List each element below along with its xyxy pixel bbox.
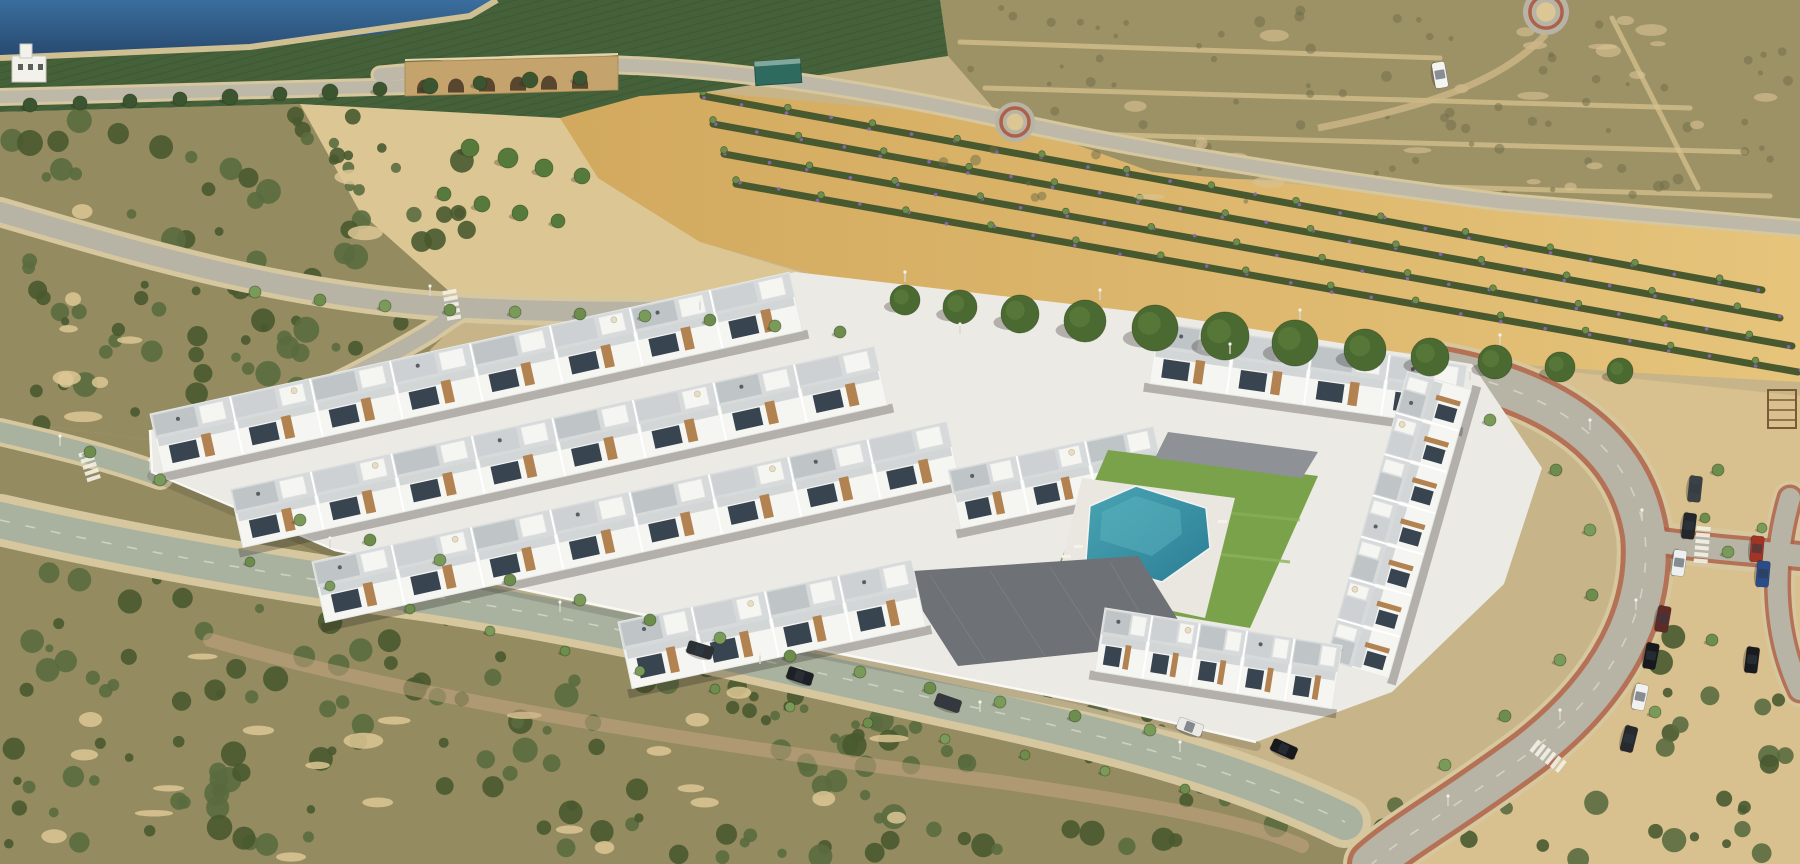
bush: [537, 820, 552, 835]
scrub-blotch: [1113, 34, 1118, 39]
scrub-blotch: [1469, 141, 1475, 147]
bush: [108, 123, 129, 144]
street-tree: [784, 650, 796, 662]
street-tree: [405, 604, 415, 614]
flower-dot: [1406, 277, 1410, 281]
window-glass: [1316, 381, 1345, 403]
flower-dot: [934, 193, 938, 197]
bush: [149, 135, 173, 159]
bush: [1584, 791, 1608, 815]
street-tree: [379, 300, 391, 312]
sand-patch: [92, 377, 108, 388]
young-tree: [1490, 285, 1497, 292]
young-tree: [1716, 275, 1723, 282]
bush: [194, 364, 213, 383]
young-tree: [1377, 213, 1384, 220]
bush: [61, 317, 69, 325]
bush: [1754, 698, 1771, 715]
scrub-blotch: [1595, 20, 1603, 28]
bush: [134, 291, 148, 305]
flower-dot: [1275, 254, 1279, 258]
stair-penthouse: [736, 595, 762, 620]
street-tree: [574, 594, 586, 606]
bush: [319, 700, 336, 717]
scrub-blotch: [1759, 145, 1765, 151]
tree: [437, 187, 451, 201]
flower-dot: [1549, 251, 1553, 255]
aerial-scene: Aerial 3D render of a new white Mediterr…: [0, 0, 1800, 864]
flower-dot: [1664, 323, 1668, 327]
flower-dot: [1103, 221, 1107, 225]
flower-dot: [1338, 211, 1342, 215]
bush: [42, 172, 52, 182]
street-tree: [1722, 546, 1734, 558]
scrub-blotch: [1218, 31, 1225, 38]
bush: [991, 844, 1002, 855]
scrub-blotch: [1096, 55, 1104, 63]
young-tree: [1293, 197, 1300, 204]
young-tree: [1734, 303, 1741, 310]
bush: [221, 741, 246, 766]
flower-dot: [1086, 165, 1090, 169]
stair-penthouse: [1130, 615, 1147, 636]
bush: [330, 148, 346, 164]
car-glass: [1645, 650, 1657, 661]
window-glass: [1238, 370, 1267, 392]
bush: [144, 825, 155, 836]
dirt-patch: [1564, 182, 1576, 190]
bush: [173, 736, 185, 748]
bush: [909, 720, 922, 733]
stair-penthouse: [1127, 431, 1151, 453]
scrub-blotch: [1766, 155, 1773, 162]
young-tree: [733, 177, 740, 184]
scrub-blotch: [998, 5, 1004, 11]
street-tree: [1144, 724, 1156, 736]
flower-dot: [740, 103, 744, 107]
street-tree: [635, 666, 645, 676]
flower-dot: [1504, 245, 1508, 249]
bush: [118, 589, 142, 613]
bush: [740, 837, 750, 847]
scrub-blotch: [1448, 36, 1453, 41]
young-tree: [1038, 151, 1045, 158]
orchard-tree: [573, 71, 587, 85]
bush: [830, 733, 839, 742]
flower-dot: [1628, 339, 1632, 343]
young-tree: [954, 135, 961, 142]
street-tree: [245, 557, 255, 567]
dirt-patch: [1650, 41, 1666, 46]
bush: [590, 820, 613, 843]
bush: [22, 253, 37, 268]
young-tree: [795, 132, 802, 139]
car-glass: [1752, 544, 1763, 554]
bush: [336, 695, 350, 709]
flower-dot: [1705, 327, 1709, 331]
young-tree: [1233, 239, 1240, 246]
bush: [130, 407, 140, 417]
pine-crown: [1482, 350, 1499, 367]
scrub-blotch: [1606, 128, 1611, 133]
car-glass: [1684, 520, 1695, 530]
sun-lounger: [1218, 520, 1227, 523]
bush: [72, 304, 87, 319]
flower-dot: [1467, 236, 1471, 240]
scrub-blotch: [1050, 107, 1059, 116]
scrub-blotch: [1095, 26, 1100, 31]
bush: [1738, 801, 1751, 814]
pine-crown: [1549, 357, 1564, 372]
bush: [378, 629, 401, 652]
sand-patch: [135, 810, 173, 817]
young-tree: [1242, 267, 1249, 274]
bush: [1152, 828, 1175, 851]
bush: [874, 813, 885, 824]
flower-dot: [1118, 252, 1122, 256]
bush: [204, 679, 225, 700]
bush: [865, 843, 885, 863]
dirt-patch: [1527, 179, 1541, 184]
scrub-blotch: [1233, 99, 1239, 105]
bush: [503, 766, 518, 781]
sand-patch: [686, 713, 709, 726]
street-tree: [1757, 523, 1767, 533]
street-tree: [1180, 784, 1190, 794]
street-tree: [1706, 634, 1718, 646]
young-tree: [1051, 179, 1058, 186]
bush: [669, 845, 688, 864]
bush: [588, 739, 605, 756]
flower-dot: [1289, 281, 1293, 285]
scrub-blotch: [1740, 147, 1749, 156]
bush: [377, 143, 387, 153]
sand-patch: [362, 797, 393, 807]
bush: [1648, 824, 1663, 839]
sun-lounger: [1074, 545, 1083, 548]
young-tree: [1547, 244, 1554, 251]
bush: [172, 692, 191, 711]
sand-patch: [869, 735, 908, 743]
bush: [39, 562, 60, 583]
bush: [716, 824, 737, 845]
street-tree: [639, 310, 651, 322]
street-tree: [769, 320, 781, 332]
young-tree: [1123, 166, 1130, 173]
orchard-tree: [273, 87, 287, 101]
bush: [343, 151, 353, 161]
scrub-blotch: [1446, 120, 1457, 131]
bush: [17, 130, 43, 156]
bush: [411, 231, 432, 252]
bush: [23, 781, 36, 794]
young-tree: [1307, 225, 1314, 232]
bush: [384, 656, 398, 670]
bush: [121, 649, 137, 665]
sand-patch: [153, 785, 184, 791]
scrub-blotch: [1760, 52, 1766, 58]
young-tree: [1575, 300, 1582, 307]
sand-patch: [79, 712, 102, 727]
scrub-blotch: [1294, 11, 1304, 21]
flower-dot: [755, 130, 759, 134]
scrub-blotch: [1426, 33, 1433, 40]
pine-crown: [1207, 319, 1231, 343]
flower-dot: [829, 115, 833, 119]
sand-patch: [812, 791, 835, 806]
bush: [349, 638, 372, 661]
scrub-blotch: [1741, 119, 1748, 126]
stair-penthouse: [809, 580, 835, 605]
roof-terrace: [1151, 618, 1179, 643]
bush: [89, 775, 100, 786]
bush: [860, 790, 870, 800]
scrub-blotch: [1494, 103, 1502, 111]
bush: [50, 158, 73, 181]
street-tree: [994, 696, 1006, 708]
sand-patch: [64, 411, 102, 422]
street-tree: [249, 286, 261, 298]
dirt-patch: [1754, 93, 1777, 102]
orchard-tree: [373, 82, 387, 96]
sand-patch: [305, 762, 330, 769]
sand-patch: [726, 687, 751, 699]
young-tree: [1462, 228, 1469, 235]
flower-dot: [1009, 175, 1013, 179]
bush: [770, 711, 780, 721]
bush: [761, 715, 771, 725]
dirt-patch: [1588, 44, 1617, 50]
utility-shed: [754, 58, 802, 85]
flower-dot: [1787, 345, 1791, 349]
stair-penthouse: [1177, 623, 1194, 644]
young-tree: [1478, 256, 1485, 263]
scrub-blotch: [1306, 90, 1314, 98]
dirt-patch: [1635, 24, 1667, 36]
orchard-tree: [23, 98, 37, 112]
flower-dot: [1653, 294, 1657, 298]
bush: [241, 335, 251, 345]
bush: [1722, 839, 1731, 848]
bush: [185, 151, 197, 163]
tree: [551, 214, 565, 228]
bush: [152, 302, 167, 317]
flower-dot: [1031, 233, 1035, 237]
tree: [498, 148, 518, 168]
roof-terrace: [1293, 640, 1321, 665]
young-tree: [1660, 316, 1667, 323]
flower-dot: [1348, 240, 1352, 244]
street-tree: [710, 684, 720, 694]
bush: [1772, 693, 1785, 706]
orchard-tree: [522, 72, 538, 88]
bush: [345, 109, 361, 125]
scrub-blotch: [939, 157, 949, 167]
pine-crown: [1069, 306, 1090, 327]
bush: [3, 738, 25, 760]
bush: [626, 778, 648, 800]
bush: [12, 800, 27, 815]
flower-dot: [1447, 282, 1451, 286]
young-tree: [1392, 241, 1399, 248]
dirt-patch: [1586, 162, 1602, 169]
bush: [1752, 843, 1772, 863]
bush: [716, 850, 730, 864]
bush: [245, 690, 258, 703]
flower-dot: [1691, 298, 1695, 302]
bush: [247, 192, 264, 209]
pine-crown: [1138, 312, 1161, 335]
bush: [436, 206, 453, 223]
street-tree: [1484, 414, 1496, 426]
flower-dot: [867, 127, 871, 131]
sand-patch: [188, 654, 218, 660]
bush: [112, 323, 125, 336]
sand-patch: [678, 784, 705, 792]
bush: [495, 651, 506, 662]
flower-dot: [910, 132, 914, 136]
sand-patch: [378, 717, 411, 725]
scrub-blotch: [1047, 82, 1052, 87]
roundabout-island: [1007, 114, 1024, 131]
street-tree: [1649, 706, 1661, 718]
scrub-blotch: [1060, 65, 1064, 69]
sand-patch: [343, 733, 383, 749]
flower-dot: [785, 111, 789, 115]
bush: [1734, 821, 1750, 837]
scrub-blotch: [1077, 19, 1084, 26]
scrub-blotch: [1416, 17, 1422, 23]
dirt-patch: [1134, 194, 1165, 200]
street-tree: [574, 308, 586, 320]
stair-penthouse: [1225, 630, 1242, 651]
scrub-blotch: [1628, 190, 1636, 198]
scrub-blotch: [1139, 120, 1148, 129]
bush: [192, 286, 201, 295]
bush: [255, 604, 264, 613]
bush: [742, 703, 757, 718]
scrub-blotch: [1545, 120, 1552, 127]
sand-patch: [72, 204, 93, 219]
bush: [255, 361, 280, 386]
orchard-tree: [422, 78, 438, 94]
tree: [535, 159, 553, 177]
flower-dot: [777, 187, 781, 191]
dirt-patch: [1260, 30, 1289, 42]
street-tree: [1020, 750, 1030, 760]
bush: [141, 340, 163, 362]
flower-dot: [966, 172, 970, 176]
young-tree: [869, 120, 876, 127]
young-tree: [1563, 272, 1570, 279]
scrub-blotch: [1758, 70, 1763, 75]
flower-dot: [1543, 327, 1547, 331]
pine-crown: [947, 295, 964, 312]
scrub-blotch: [1548, 54, 1557, 63]
flower-dot: [1178, 207, 1182, 211]
bush: [450, 205, 466, 221]
dirt-patch: [1404, 147, 1432, 153]
dirt-patch: [1517, 92, 1549, 100]
stair-penthouse: [990, 460, 1014, 482]
bush: [1656, 738, 1675, 757]
young-tree: [784, 104, 791, 111]
young-tree: [721, 147, 728, 154]
flower-dot: [1667, 349, 1671, 353]
scrub-blotch: [1412, 157, 1419, 164]
flower-dot: [1193, 234, 1197, 238]
scrub-blotch: [989, 146, 997, 154]
pine-crown: [1610, 362, 1623, 375]
flower-dot: [1562, 279, 1566, 283]
bush: [726, 701, 739, 714]
bush: [36, 290, 51, 305]
scrub-blotch: [1389, 165, 1396, 172]
bush: [187, 326, 207, 346]
dirt-patch: [1124, 101, 1146, 112]
bush: [352, 714, 374, 736]
scrub-blotch: [1778, 47, 1787, 56]
bush: [1062, 820, 1080, 838]
scrub-blotch: [1086, 77, 1096, 87]
flower-dot: [816, 199, 820, 203]
sand-patch: [71, 749, 98, 760]
scrub-blotch: [1009, 12, 1018, 21]
car-glass: [1747, 654, 1758, 664]
young-tree: [1072, 237, 1079, 244]
bush: [172, 588, 192, 608]
bush: [45, 644, 53, 652]
orchard-tree: [123, 94, 137, 108]
young-tree: [1497, 312, 1504, 319]
scrub-blotch: [1244, 199, 1249, 204]
bush: [343, 244, 368, 269]
sand-patch: [348, 226, 383, 241]
bush: [95, 738, 106, 749]
bush: [68, 568, 92, 592]
bush: [1079, 821, 1104, 846]
bush: [1690, 832, 1699, 841]
young-tree: [1208, 182, 1215, 189]
flower-dot: [702, 96, 706, 100]
car-glass: [1657, 613, 1668, 624]
roof-terrace: [1198, 625, 1226, 650]
bush: [406, 207, 421, 222]
flower-dot: [1754, 364, 1758, 368]
dirt-patch: [1690, 120, 1704, 129]
roundabout-island: [1536, 2, 1555, 21]
young-tree: [1582, 327, 1589, 334]
bush: [69, 832, 89, 852]
young-tree: [1632, 259, 1639, 266]
bush: [958, 832, 971, 845]
scrub-blotch: [1111, 82, 1116, 87]
flower-dot: [1608, 284, 1612, 288]
orchard-tree: [322, 84, 338, 100]
young-tree: [1404, 269, 1411, 276]
young-tree: [806, 162, 813, 169]
young-tree: [1746, 331, 1753, 338]
scrub-blotch: [1254, 16, 1265, 27]
street-tree: [1712, 464, 1724, 476]
flower-dot: [1168, 179, 1172, 183]
flower-dot: [1098, 191, 1102, 195]
bush: [557, 838, 576, 857]
dirt-patch: [1195, 137, 1207, 149]
scrub-blotch: [1196, 43, 1202, 49]
flower-dot: [1499, 320, 1503, 324]
flower-dot: [1205, 264, 1209, 268]
